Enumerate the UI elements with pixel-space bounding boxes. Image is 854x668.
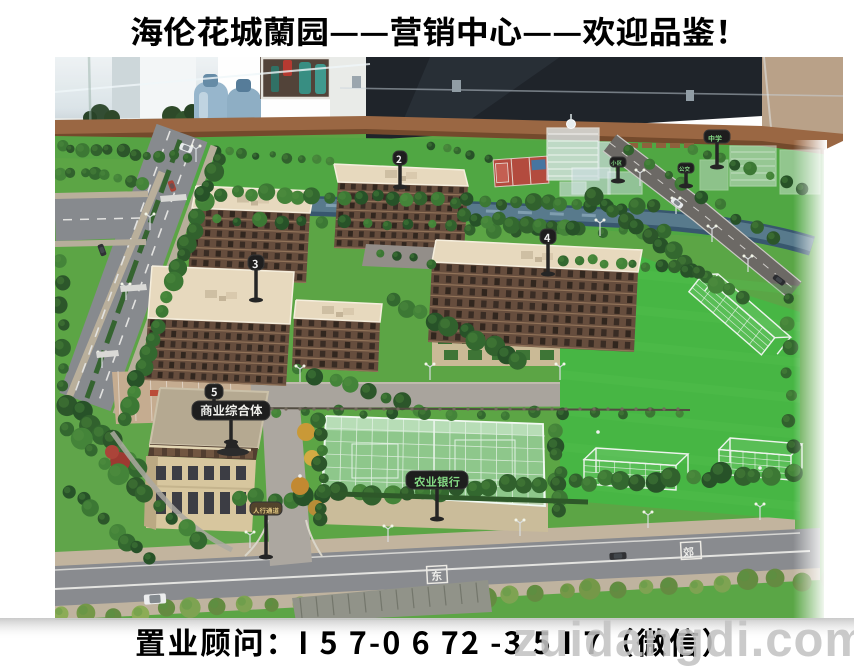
svg-text:zuidangdi.com: zuidangdi.com	[513, 613, 854, 667]
